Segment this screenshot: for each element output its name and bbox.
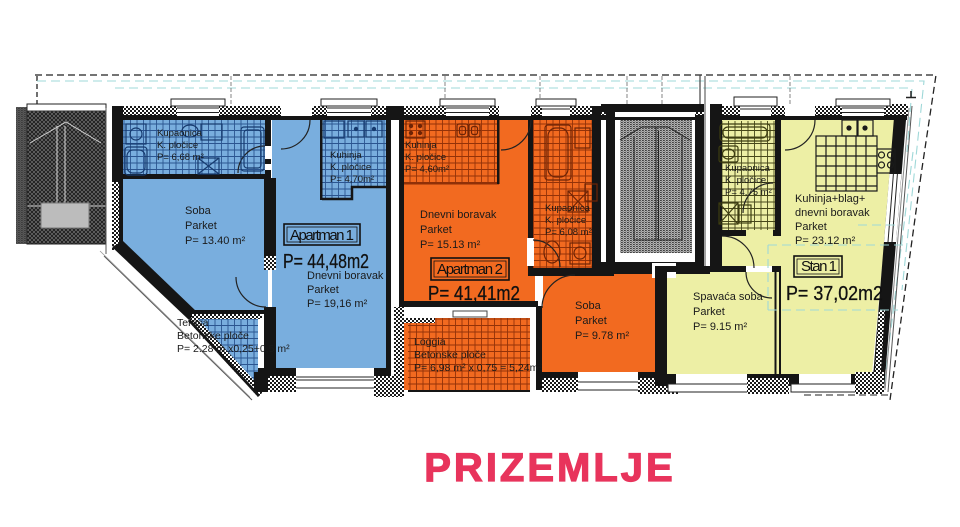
svg-text:Kuhinja+blag+: Kuhinja+blag+ [795,193,865,205]
svg-text:Terasa: Terasa [177,317,209,329]
svg-text:P= 2.28 m x0,25+0,5 m²: P= 2.28 m x0,25+0,5 m² [177,343,290,355]
svg-text:Apartman 1: Apartman 1 [290,227,354,244]
svg-text:Dnevni boravak: Dnevni boravak [420,209,497,221]
svg-text:Spavaća soba: Spavaća soba [693,291,764,303]
svg-text:P= 6,68 m²: P= 6,68 m² [157,152,204,163]
svg-text:P= 44,48m2: P= 44,48m2 [283,251,369,273]
svg-text:Kuhinja: Kuhinja [405,140,437,151]
svg-text:P= 19,16 m²: P= 19,16 m² [307,298,368,310]
svg-text:Parket: Parket [795,221,827,233]
svg-text:Kupaonica: Kupaonica [545,203,591,214]
svg-text:K. pločice: K. pločice [405,152,446,163]
svg-text:dnevni boravak: dnevni boravak [795,207,870,219]
svg-text:P= 9.15 m²: P= 9.15 m² [693,321,747,333]
svg-text:Parket: Parket [420,224,452,236]
svg-text:Betonske ploče: Betonske ploče [414,349,486,361]
svg-text:Apartman 2: Apartman 2 [437,261,503,278]
svg-text:K. pločice: K. pločice [725,175,766,186]
svg-text:P= 37,02m2: P= 37,02m2 [786,283,883,305]
svg-text:Soba: Soba [575,300,602,312]
svg-text:P= 9.78 m²: P= 9.78 m² [575,330,629,342]
svg-text:Betonske ploče: Betonske ploče [177,330,249,342]
svg-text:K. pločice: K. pločice [545,215,586,226]
svg-text:P= 23.12 m²: P= 23.12 m² [795,235,856,247]
svg-text:Stan 1: Stan 1 [801,258,837,275]
svg-text:Kuhinja: Kuhinja [330,150,362,161]
svg-text:K. pločice: K. pločice [330,162,371,173]
svg-text:P= 4,60m²: P= 4,60m² [405,164,449,175]
svg-text:Parket: Parket [185,220,217,232]
svg-text:P= 15.13 m²: P= 15.13 m² [420,239,481,251]
svg-text:Parket: Parket [693,306,725,318]
svg-text:K. pločice: K. pločice [157,140,198,151]
svg-text:P= 6,98 m² x 0,75 = 5,24m²: P= 6,98 m² x 0,75 = 5,24m² [414,362,542,374]
svg-text:PRIZEMLJE: PRIZEMLJE [424,446,675,490]
svg-text:Loggia: Loggia [414,336,446,348]
svg-text:P= 41,41m2: P= 41,41m2 [428,283,520,305]
svg-text:P= 4,70m²: P= 4,70m² [330,174,374,185]
svg-text:P= 4,75 m²: P= 4,75 m² [725,187,772,198]
svg-text:P= 6,08 m²: P= 6,08 m² [545,227,592,238]
svg-text:Kupaonica: Kupaonica [725,163,771,174]
svg-text:Soba: Soba [185,205,212,217]
svg-text:Kupaonica: Kupaonica [157,128,203,139]
svg-text:Parket: Parket [575,315,607,327]
svg-text:P= 13.40 m²: P= 13.40 m² [185,235,246,247]
svg-text:Parket: Parket [307,284,339,296]
